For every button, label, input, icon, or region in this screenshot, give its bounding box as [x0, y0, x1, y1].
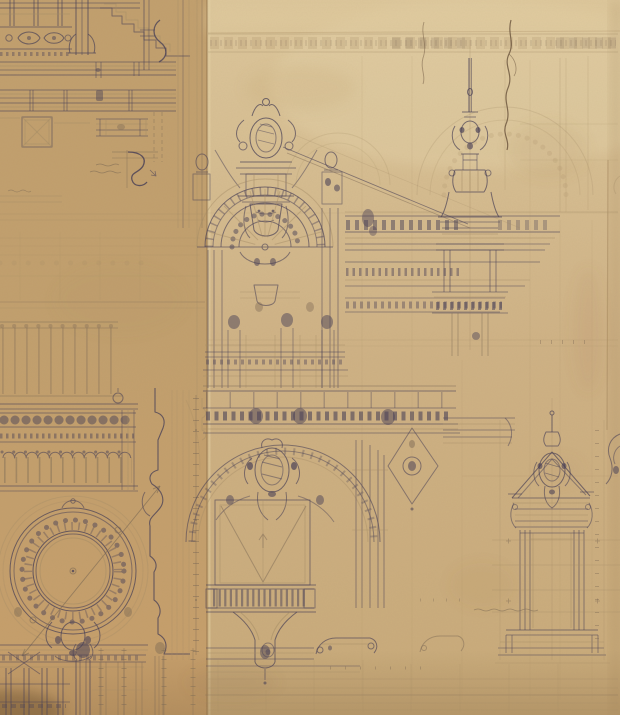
architectural-drawing: Architectural drawing — ornate Beaux-Art… — [0, 0, 620, 715]
paper-grain — [0, 0, 620, 715]
